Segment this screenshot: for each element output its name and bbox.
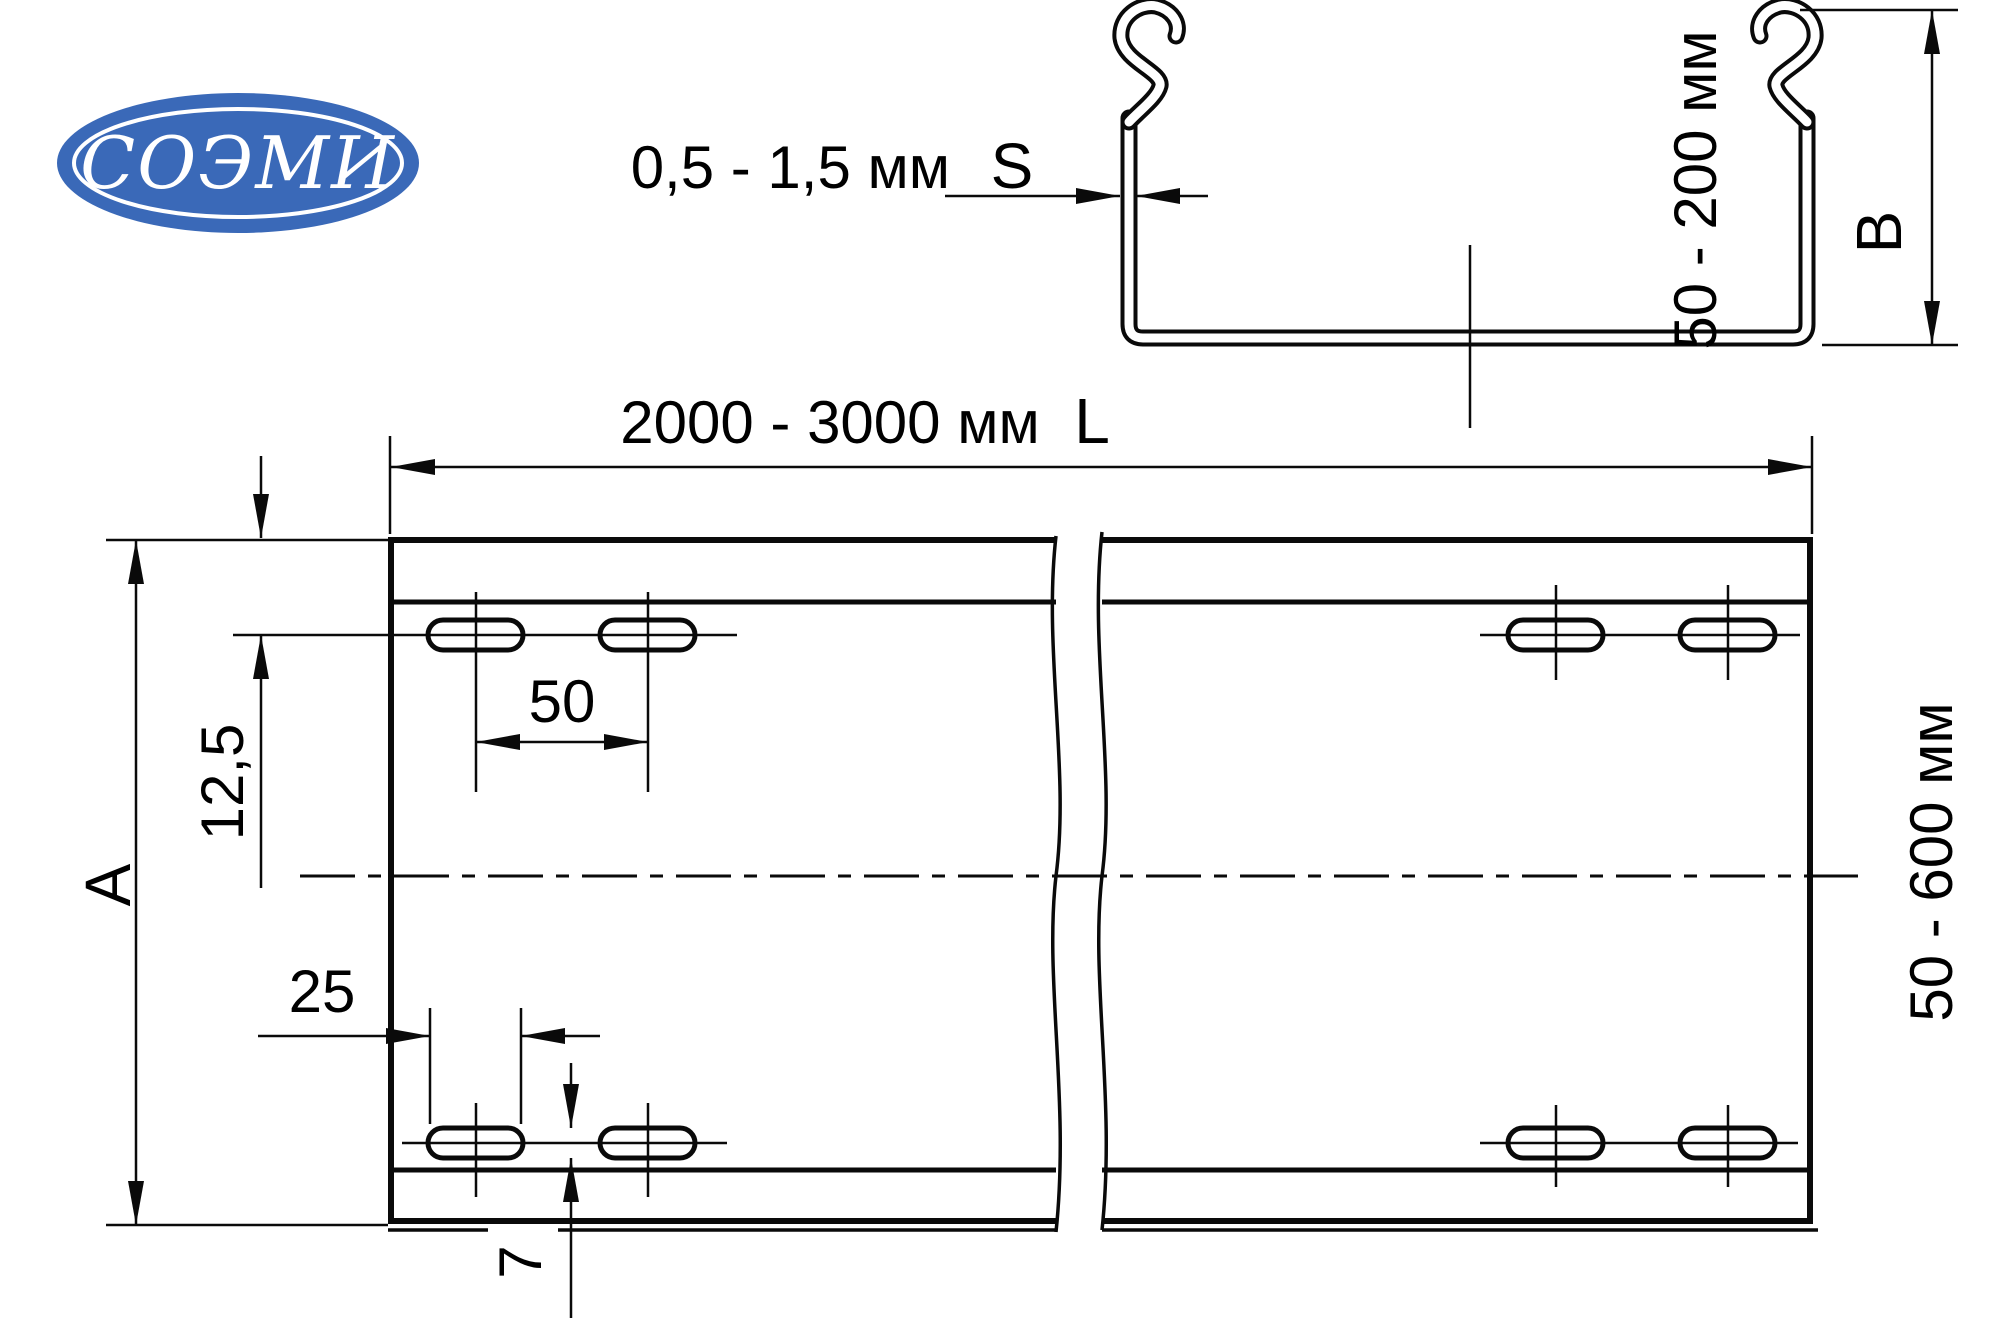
company-logo: СОЭМИ (57, 93, 419, 233)
slot-length-arrow-left-icon (521, 1028, 565, 1044)
pitch-arrow-left-icon (476, 734, 520, 750)
width-letter-label: A (72, 863, 144, 906)
b-arrow-up-icon (1924, 10, 1940, 54)
l-arrow-left-icon (391, 459, 435, 475)
break-line-right (1098, 532, 1106, 1230)
b-arrow-down-icon (1924, 301, 1940, 345)
hole-offset-label: 12,5 (189, 724, 256, 841)
height-range-label: 50 - 200 мм (1662, 30, 1729, 349)
length-range-label: 2000 - 3000 мм (620, 389, 1039, 456)
dimension-hole-pitch: 50 (476, 668, 648, 750)
thickness-range-label: 0,5 - 1,5 мм (631, 134, 950, 201)
plan-view: 2000 - 3000 мм L A 50 - 600 мм 12,5 50 (72, 385, 1965, 1318)
pitch-arrow-right-icon (604, 734, 648, 750)
a-arrow-down-icon (128, 1181, 144, 1225)
slot-length-label: 25 (289, 958, 356, 1025)
drawing-page: СОЭМИ 0,5 - 1,5 мм S 50 - 2 (0, 0, 2000, 1333)
s-arrow-left-icon (1136, 188, 1180, 204)
dimension-slot-length: 25 (258, 958, 600, 1124)
slotted-holes (233, 585, 1800, 1197)
break-line-left (1052, 536, 1060, 1232)
logo-text: СОЭМИ (80, 121, 396, 205)
dimension-slot-width: 7 (487, 1063, 579, 1318)
cross-section-view: 0,5 - 1,5 мм S 50 - 200 мм B (631, 6, 1958, 428)
thickness-letter-label: S (991, 130, 1034, 202)
height-letter-label: B (1843, 211, 1915, 254)
l-arrow-right-icon (1768, 459, 1812, 475)
length-letter-label: L (1074, 385, 1110, 457)
slot-width-arrow-down-icon (563, 1084, 579, 1128)
width-range-label: 50 - 600 мм (1898, 702, 1965, 1021)
dimension-hole-offset: 12,5 (189, 456, 269, 888)
offset-arrow-down-icon (253, 494, 269, 538)
hole-pitch-label: 50 (529, 668, 596, 735)
s-arrow-right-icon (1076, 188, 1120, 204)
slot-width-label: 7 (487, 1245, 554, 1278)
dimension-length-L: 2000 - 3000 мм L (390, 385, 1812, 534)
slot-length-arrow-right-icon (386, 1028, 430, 1044)
technical-drawing: СОЭМИ 0,5 - 1,5 мм S 50 - 2 (0, 0, 2000, 1333)
a-arrow-up-icon (128, 540, 144, 584)
